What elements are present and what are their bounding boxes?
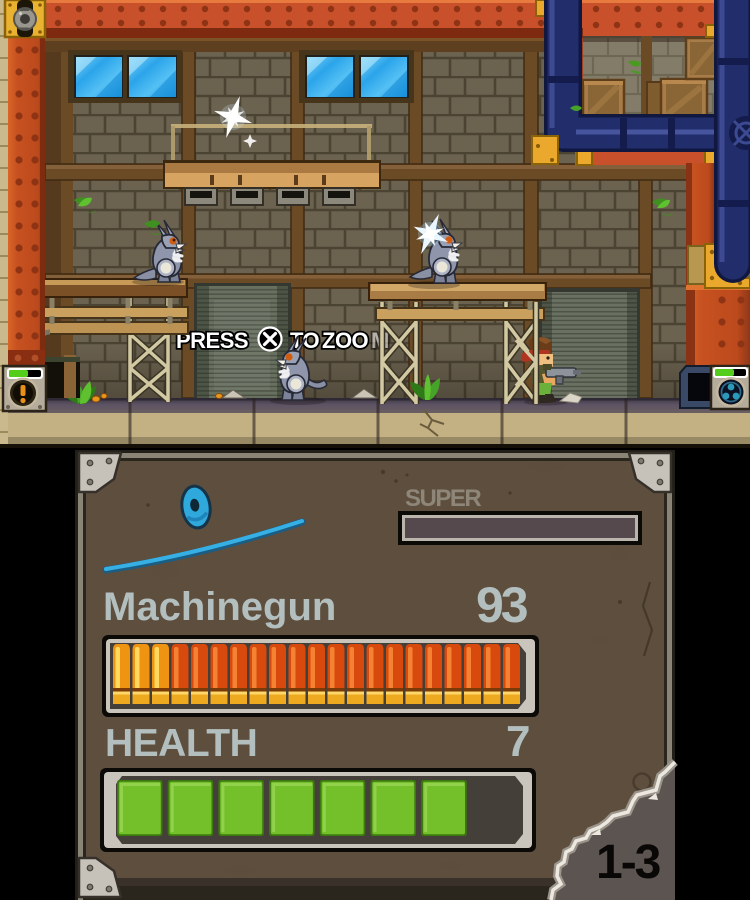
svg-text:93: 93	[476, 577, 527, 633]
svg-text:ZOO: ZOO	[322, 328, 369, 353]
svg-text:1-3: 1-3	[596, 836, 660, 889]
svg-text:Machinegun: Machinegun	[103, 585, 336, 629]
svg-text:HEALTH: HEALTH	[105, 722, 257, 765]
svg-text:7: 7	[506, 717, 530, 766]
svg-text:SUPER: SUPER	[405, 485, 481, 512]
